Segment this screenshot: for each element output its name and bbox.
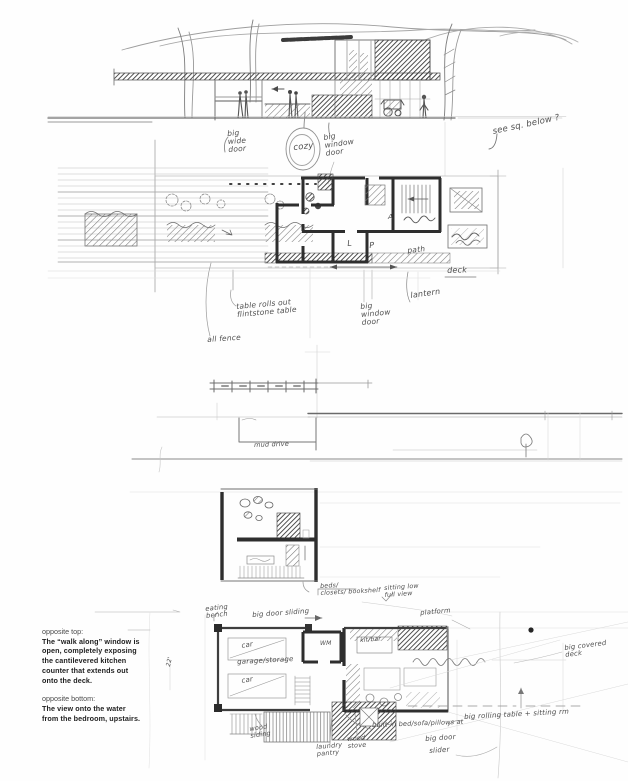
annotation-deck: deck xyxy=(447,266,467,275)
annotation-wood-siding: wood siding xyxy=(249,723,271,740)
annotation-room-a: A xyxy=(388,214,393,222)
caption-top-label: opposite top: xyxy=(42,627,142,637)
annotation-slider: slider xyxy=(429,747,450,756)
caption-bottom-text: The view onto the water from the bedroom… xyxy=(42,704,142,723)
annotation-eating-bench: eating bench xyxy=(205,604,229,621)
caption-bottom-label: opposite bottom: xyxy=(42,694,142,704)
annotation-wm: WM xyxy=(320,641,332,647)
main-floor-plan-sketch xyxy=(48,168,563,338)
annotation-laundry-pantry: laundry pantry xyxy=(316,742,343,758)
ground-floor-plan-sketch xyxy=(95,610,628,778)
annotation-big-window-door-plan: big window door xyxy=(360,300,392,327)
annotation-big-wide-door: big wide door xyxy=(227,129,247,155)
annotation-wood-stove: wood stove xyxy=(347,735,367,750)
caption-top-text: The “walk along” window is open, complet… xyxy=(42,637,142,686)
annotation-mud-drive: mud drive xyxy=(254,441,289,449)
annotation-big-window-door-elevation: big window door xyxy=(323,130,356,158)
bedroom-plan-sketch xyxy=(130,488,622,616)
annotation-room-p: P xyxy=(369,242,375,251)
annotation-room-l: L xyxy=(347,240,352,249)
tractor-sketch xyxy=(381,100,404,116)
caption-block: opposite top: The “walk along” window is… xyxy=(42,627,142,732)
book-page: big wide door cozy big window door see s… xyxy=(0,0,628,781)
upper-elevation-sketch xyxy=(132,345,622,472)
top-elevation-sketch xyxy=(48,20,578,292)
annotation-sitting-low: sitting low full view xyxy=(384,584,420,600)
